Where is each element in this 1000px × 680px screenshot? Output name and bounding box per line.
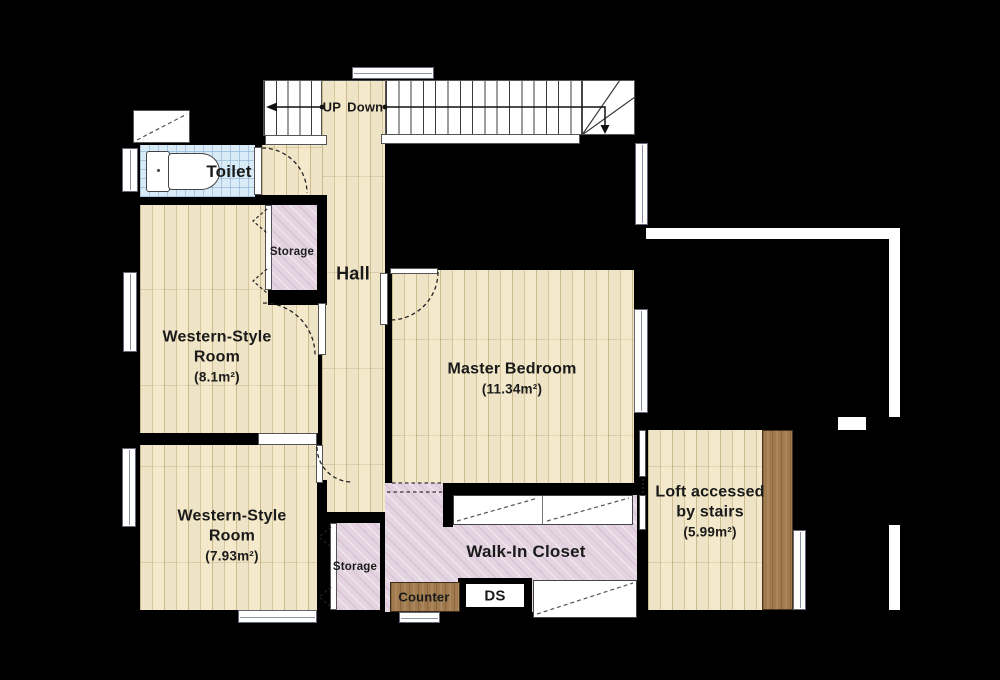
room-name-line: Western-Style xyxy=(177,507,286,527)
room-area: (7.93m²) xyxy=(177,547,286,566)
toilet-label: Toilet xyxy=(206,162,251,182)
roof-outline-top xyxy=(646,228,900,239)
room-area: (8.1m²) xyxy=(162,368,271,387)
closet-shelf-bottom xyxy=(533,580,637,618)
master-door-leaf xyxy=(380,273,388,325)
toilet-window xyxy=(122,148,138,192)
master-bedroom-east-window xyxy=(634,309,648,413)
master-bedroom-label: Master Bedroom (11.34m²) xyxy=(447,360,576,399)
hall-floor xyxy=(322,80,385,512)
stairs-upper-flight xyxy=(263,80,322,136)
room-name-line: Loft accessed xyxy=(655,483,764,503)
counter-label: Counter xyxy=(398,590,449,605)
room-name-line: Western-Style xyxy=(162,328,271,348)
stairs-lower-flight xyxy=(385,80,582,135)
stairs-landing-edge-left xyxy=(265,135,327,145)
loft-door-lower xyxy=(639,495,646,530)
room-name-line: Master Bedroom xyxy=(447,360,576,380)
closet-wall-top xyxy=(443,483,637,495)
toilet-flush-button xyxy=(157,169,160,172)
hall-label: Hall xyxy=(336,264,370,285)
stairwell-top-window xyxy=(352,67,434,79)
roof-outline-notch xyxy=(838,417,866,430)
stairs-up-label: UP xyxy=(323,100,341,115)
toilet-door-leaf xyxy=(254,147,262,195)
western-room-lower-window xyxy=(122,448,136,527)
western-room-upper-label: Western-Style Room (8.1m²) xyxy=(162,328,271,387)
walk-in-closet-label: Walk-In Closet xyxy=(466,542,585,562)
western-room-upper-window xyxy=(123,272,137,352)
closet-bottom-window xyxy=(399,612,440,623)
room-area: (11.34m²) xyxy=(447,380,576,399)
stairs-direction-label: UP Down xyxy=(323,100,384,115)
western-room-lower-door-leaf xyxy=(316,445,323,483)
western-room-lower-bottom-window xyxy=(238,610,317,623)
storage-lower-label: Storage xyxy=(333,561,377,573)
loft-stairs-wood-strip xyxy=(762,430,793,610)
stairs-winder xyxy=(582,80,635,135)
master-door-header xyxy=(390,268,438,274)
closet-wall-stub xyxy=(443,495,453,527)
western-room-lower-door-opening xyxy=(258,433,317,445)
toilet-vestibule-floor xyxy=(262,145,322,195)
loft-east-window xyxy=(793,530,806,610)
room-area: (5.99m²) xyxy=(655,523,764,542)
stairwell-east-window xyxy=(635,143,648,225)
hall-west-wall-lower xyxy=(317,480,327,512)
roof-outline-bottom-right xyxy=(889,525,900,610)
loft-label: Loft accessed by stairs (5.99m²) xyxy=(655,483,764,542)
roof-outline-right xyxy=(889,239,900,417)
storage-upper-label: Storage xyxy=(270,246,314,258)
western-room-upper-door-opening xyxy=(318,303,326,355)
stairs-down-label: Down xyxy=(347,100,383,115)
floor-plan: UP Down Toilet Hall Storage Storage West… xyxy=(0,0,1000,680)
room-name-line: Room xyxy=(162,348,271,368)
room-name-line: by stairs xyxy=(655,503,764,523)
loft-door-upper xyxy=(639,430,646,477)
western-room-lower-label: Western-Style Room (7.93m²) xyxy=(177,507,286,566)
washstand-box xyxy=(133,110,190,143)
ds-label: DS xyxy=(484,588,505,605)
storage-upper-wall-right xyxy=(317,195,327,305)
closet-shelf-top xyxy=(453,495,633,525)
stairs-landing-edge-right xyxy=(381,134,580,144)
room-name-line: Room xyxy=(177,527,286,547)
